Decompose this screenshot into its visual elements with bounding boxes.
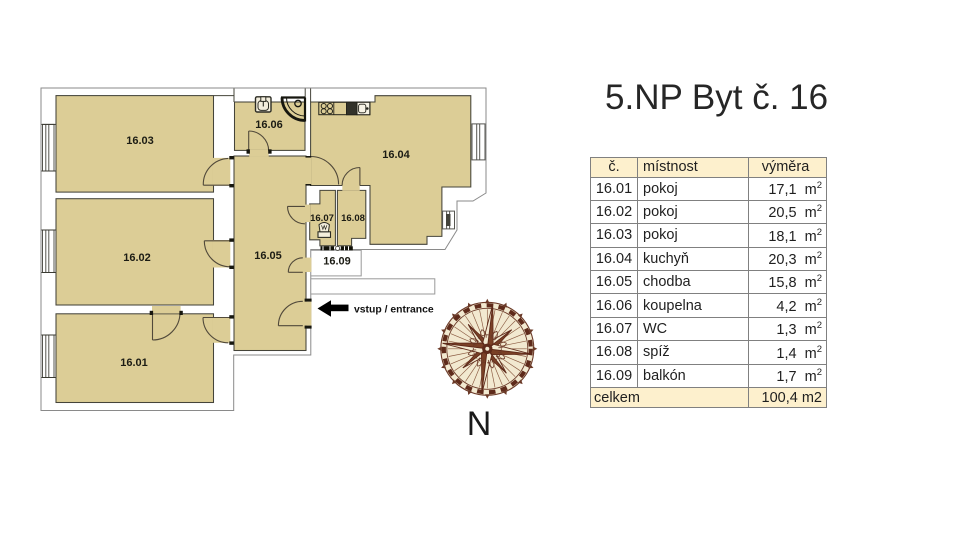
svg-text:16.07: 16.07	[310, 213, 334, 224]
svg-text:N: N	[467, 405, 492, 443]
svg-text:16.01: 16.01	[120, 357, 148, 369]
svg-text:16.02: 16.02	[123, 252, 151, 264]
svg-text:16.05: 16.05	[254, 250, 282, 262]
svg-text:16.04: 16.04	[382, 149, 410, 161]
svg-text:16.03: 16.03	[126, 135, 154, 147]
svg-text:16.06: 16.06	[255, 119, 283, 131]
svg-text:16.08: 16.08	[341, 213, 365, 224]
svg-text:vstup / entrance: vstup / entrance	[354, 304, 434, 315]
svg-text:16.09: 16.09	[323, 256, 351, 268]
